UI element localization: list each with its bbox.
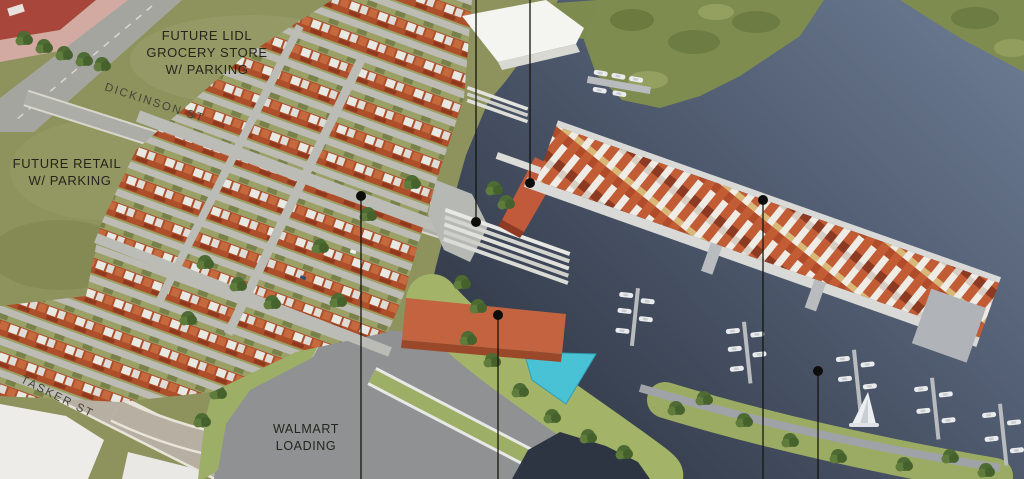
label-future-retail-line2: W/ PARKING [28, 173, 111, 188]
callout-marina-dot [813, 366, 823, 376]
callout-waterfront-plaza-dot [471, 217, 481, 227]
marsh-brush [951, 7, 999, 29]
marsh-brush [668, 30, 720, 54]
aerial-render-canvas: FUTURE LIDL GROCERY STORE W/ PARKING FUT… [0, 0, 1024, 479]
callout-pier-building-dot [525, 178, 535, 188]
label-future-lidl-line1: FUTURE LIDL [162, 28, 252, 43]
callout-townhome-block-dot [356, 191, 366, 201]
site-plan-rendering: FUTURE LIDL GROCERY STORE W/ PARKING FUT… [0, 0, 1024, 479]
marsh-grass [698, 4, 734, 20]
label-future-lidl-line3: W/ PARKING [165, 62, 248, 77]
marsh-brush [610, 9, 654, 31]
label-walmart-loading-line1: WALMART [273, 422, 339, 436]
label-future-lidl-line2: GROCERY STORE [146, 45, 267, 60]
label-walmart-loading-line2: LOADING [276, 439, 336, 453]
marsh-brush [732, 11, 780, 33]
callout-floating-homes-dot [758, 195, 768, 205]
label-future-retail-line1: FUTURE RETAIL [13, 156, 122, 171]
callout-retail-building-dot [493, 310, 503, 320]
